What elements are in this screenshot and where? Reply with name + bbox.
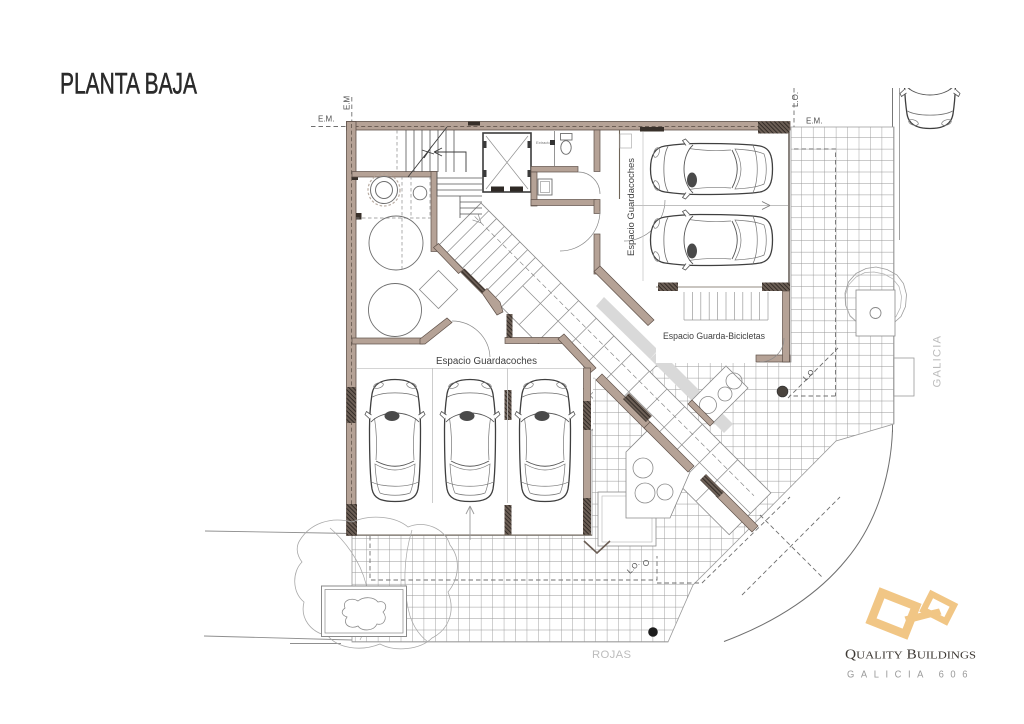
svg-text:GALICIA 606: GALICIA 606	[847, 670, 974, 681]
svg-text:QUALITY BUILDINGS: QUALITY BUILDINGS	[845, 647, 976, 662]
svg-text:E.M.: E.M.	[806, 117, 822, 126]
svg-text:GALICIA: GALICIA	[932, 335, 944, 388]
svg-text:E.M: E.M	[343, 95, 352, 110]
svg-text:Espacio Guardacoches: Espacio Guardacoches	[436, 356, 537, 367]
svg-text:Espacio Guarda-Bicicletas: Espacio Guarda-Bicicletas	[663, 331, 765, 341]
svg-text:Espacio Guardacoches: Espacio Guardacoches	[626, 158, 637, 256]
svg-text:PLANTA BAJA: PLANTA BAJA	[60, 68, 197, 101]
svg-text:L.O.: L.O.	[791, 92, 800, 107]
svg-text:ROJAS: ROJAS	[592, 649, 634, 661]
svg-text:E.M.: E.M.	[318, 115, 334, 124]
